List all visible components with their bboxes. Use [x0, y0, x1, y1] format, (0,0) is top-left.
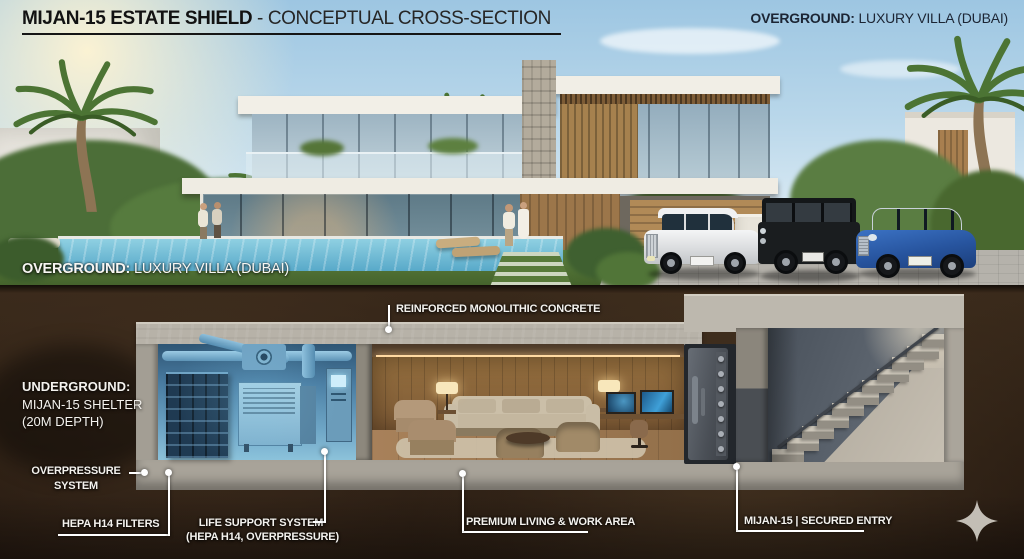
leader-dot — [141, 469, 148, 476]
leader-dot — [165, 469, 172, 476]
stairwell — [768, 328, 944, 462]
balcony-planter — [300, 140, 344, 156]
page-title: MIJAN-15 ESTATE SHIELD - CONCEPTUAL CROS… — [22, 8, 561, 35]
overground-label: OVERGROUND: LUXURY VILLA (DUBAI) — [22, 261, 289, 277]
rr-grille — [646, 234, 658, 258]
monitor — [640, 390, 674, 414]
car-g-wagon — [758, 196, 862, 278]
person — [503, 204, 515, 246]
office-chair — [628, 420, 652, 448]
table-lamp — [436, 382, 458, 416]
leader-dot — [459, 470, 466, 477]
concrete-right-wall — [944, 328, 964, 462]
entry-corridor-wall — [736, 328, 768, 462]
license-plate — [690, 256, 714, 266]
leader-line — [736, 530, 864, 532]
villa-roof-upper-left — [238, 96, 556, 114]
leader-line — [388, 305, 390, 326]
villa-mid-slab — [182, 178, 778, 194]
vault-handle — [692, 376, 698, 424]
villa-louvre-strip — [560, 94, 770, 104]
coffee-table — [506, 432, 550, 444]
cloud — [600, 28, 780, 54]
balcony-planter — [428, 138, 478, 154]
leader-line — [462, 477, 464, 531]
car-bentley — [856, 202, 978, 280]
label-hepa-filters: HEPA H14 FILTERS — [62, 518, 159, 530]
armchair — [408, 420, 456, 458]
stair-cap-slab — [684, 294, 964, 332]
label-premium-living: PREMIUM LIVING & WORK AREA — [466, 516, 635, 528]
leader-line — [58, 534, 170, 536]
stair-step — [817, 415, 849, 428]
four-point-star-icon — [956, 500, 998, 542]
label-secured-entry: MIJAN-15 | SECURED ENTRY — [744, 515, 892, 527]
living-room — [372, 344, 684, 460]
person — [197, 203, 209, 239]
room-divider-wall — [356, 344, 372, 460]
estate-cross-section: REINFORCED MONOLITHIC CONCRETE UNDERGROU… — [0, 0, 1024, 559]
monitor — [606, 392, 636, 414]
underground-line1: UNDERGROUND: — [22, 378, 142, 396]
stair-step — [847, 392, 879, 405]
underground-line2: MIJAN-15 SHELTER — [22, 396, 142, 414]
label-reinforced-concrete: REINFORCED MONOLITHIC CONCRETE — [396, 303, 600, 315]
page-title-bold: MIJAN-15 ESTATE SHIELD — [22, 8, 252, 29]
concrete-bottom-slab — [136, 460, 964, 490]
palm-tree — [0, 42, 165, 227]
leader-dot — [733, 463, 740, 470]
person — [518, 202, 529, 246]
leader-line — [168, 475, 170, 536]
person — [211, 202, 223, 238]
tech-room-glow — [158, 344, 356, 460]
license-plate — [908, 256, 932, 266]
underground-line3: (20M DEPTH) — [22, 413, 142, 431]
leader-dot — [385, 326, 392, 333]
bentley-grille — [858, 236, 869, 256]
label-overpressure: OVERPRESSURE SYSTEM — [24, 464, 128, 494]
tub-chair — [556, 418, 600, 454]
work-desk — [600, 388, 684, 448]
license-plate — [802, 252, 824, 262]
page-title-rest: - CONCEPTUAL CROSS-SECTION — [252, 8, 551, 29]
label-underground: UNDERGROUND: MIJAN-15 SHELTER (20M DEPTH… — [22, 378, 142, 431]
car-rolls-royce — [644, 206, 762, 278]
corner-label-overground: OVERGROUND: LUXURY VILLA (DUBAI) — [750, 10, 1008, 26]
leader-line — [736, 470, 738, 530]
leader-line — [129, 472, 141, 474]
villa-wood-slats — [560, 94, 638, 186]
soil-rim — [0, 285, 1024, 293]
vault-door — [684, 344, 736, 464]
villa-roof-upper-right — [548, 76, 780, 94]
leader-dot — [321, 448, 328, 455]
leader-line — [462, 531, 588, 533]
leader-line — [324, 453, 326, 523]
